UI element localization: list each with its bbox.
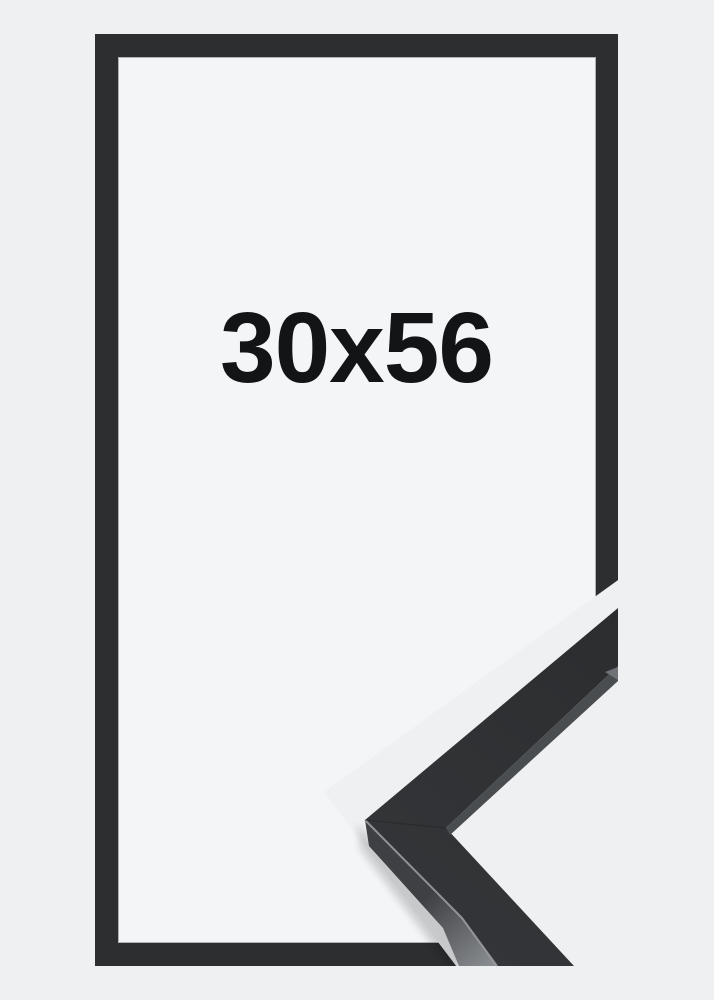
product-image: 30x56 [0, 0, 714, 1000]
frame-graphic [0, 0, 714, 1000]
frame-opening [118, 57, 596, 943]
frame-outline-group [95, 34, 618, 966]
size-label: 30x56 [95, 298, 618, 398]
